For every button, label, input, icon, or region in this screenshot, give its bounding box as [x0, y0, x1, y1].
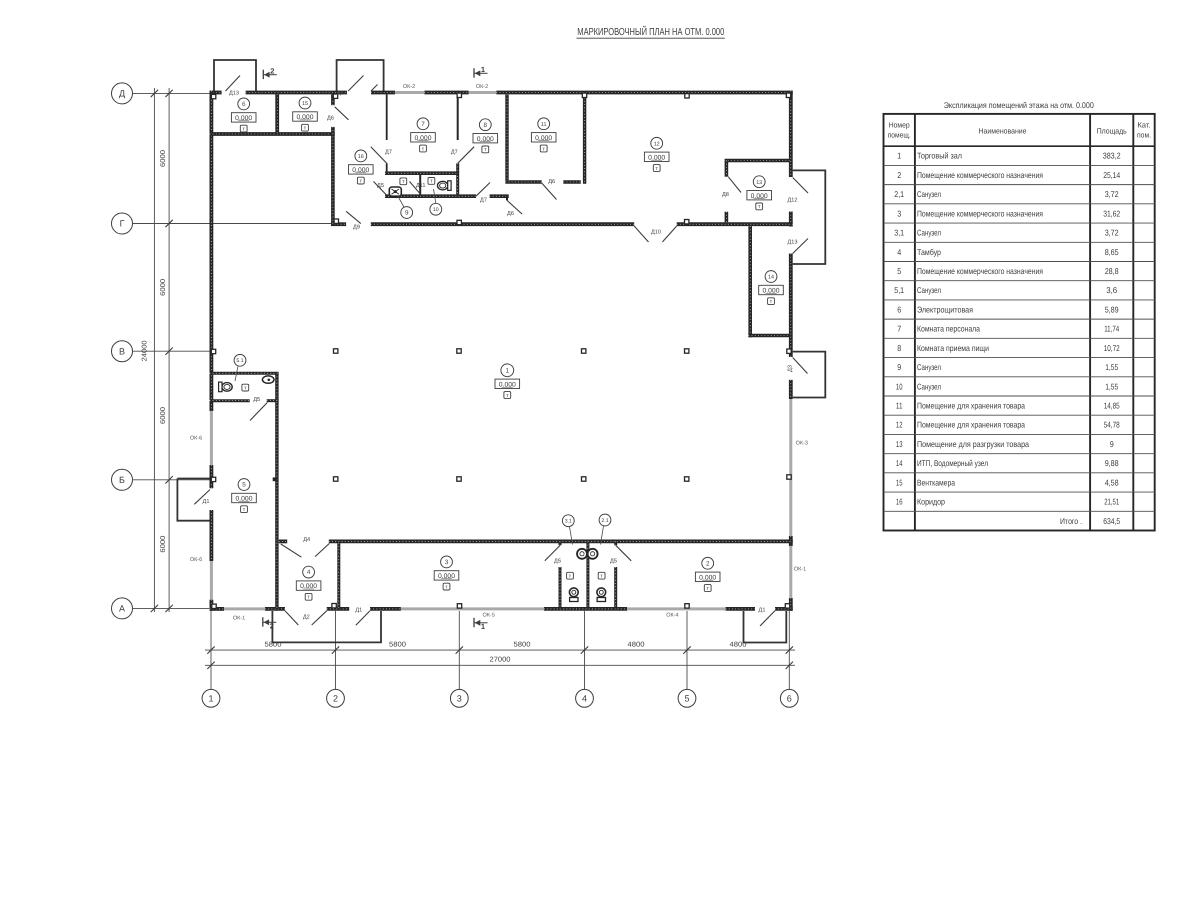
- svg-text:А: А: [119, 604, 125, 614]
- svg-text:2.1: 2.1: [601, 518, 608, 524]
- svg-text:2: 2: [333, 694, 338, 704]
- svg-text:634,5: 634,5: [1103, 516, 1120, 526]
- svg-text:3: 3: [897, 208, 901, 218]
- svg-text:ОК-5: ОК-5: [483, 612, 495, 618]
- svg-text:Санузел: Санузел: [917, 228, 941, 238]
- svg-text:7: 7: [421, 121, 425, 128]
- svg-text:12: 12: [896, 420, 903, 430]
- svg-text:8,65: 8,65: [1105, 247, 1119, 257]
- svg-text:Комната персонала: Комната персонала: [917, 324, 980, 334]
- svg-text:28,8: 28,8: [1105, 266, 1119, 276]
- svg-text:10,72: 10,72: [1104, 343, 1120, 353]
- svg-text:9: 9: [1110, 439, 1114, 449]
- svg-text:1: 1: [481, 65, 485, 74]
- svg-text:Венткамера: Венткамера: [917, 477, 955, 487]
- svg-text:ОК-1: ОК-1: [233, 616, 245, 622]
- svg-text:Д4: Д4: [303, 537, 310, 543]
- svg-text:2: 2: [270, 621, 274, 630]
- svg-text:5: 5: [897, 266, 901, 276]
- svg-text:4800: 4800: [628, 641, 645, 648]
- svg-text:пом.: пом.: [1137, 131, 1151, 140]
- svg-text:Д3: Д3: [788, 365, 794, 372]
- svg-text:Д5: Д5: [610, 558, 617, 564]
- svg-text:383,2: 383,2: [1103, 151, 1121, 161]
- svg-text:11: 11: [896, 401, 903, 411]
- svg-text:8: 8: [897, 343, 901, 353]
- svg-text:ОК-3: ОК-3: [796, 441, 808, 447]
- svg-text:6000: 6000: [160, 535, 167, 552]
- svg-text:6000: 6000: [160, 407, 167, 424]
- svg-text:Д1: Д1: [759, 608, 766, 614]
- svg-text:6: 6: [242, 101, 246, 108]
- svg-text:16: 16: [358, 154, 364, 160]
- svg-text:В: В: [119, 346, 125, 356]
- svg-text:9,88: 9,88: [1105, 458, 1119, 468]
- svg-text:2: 2: [706, 560, 710, 567]
- svg-text:Тамбур: Тамбур: [917, 247, 941, 257]
- svg-text:5.1: 5.1: [236, 358, 243, 364]
- svg-text:8: 8: [484, 122, 488, 129]
- svg-text:Д12: Д12: [787, 198, 797, 204]
- svg-text:1: 1: [481, 622, 485, 631]
- svg-text:МАРКИРОВОЧНЫЙ ПЛАН НА ОТМ. 0.0: МАРКИРОВОЧНЫЙ ПЛАН НА ОТМ. 0.000: [577, 25, 724, 38]
- svg-text:ОК-2: ОК-2: [476, 84, 488, 90]
- svg-text:13: 13: [756, 180, 762, 186]
- svg-text:13: 13: [896, 439, 903, 449]
- svg-text:Д2: Д2: [303, 614, 310, 620]
- svg-text:Д7: Д7: [451, 150, 458, 156]
- svg-text:Д8: Д8: [722, 192, 729, 198]
- svg-text:2: 2: [270, 67, 274, 76]
- svg-text:Комната приема пищи: Комната приема пищи: [917, 343, 989, 353]
- svg-text:5: 5: [242, 482, 246, 489]
- svg-text:Д7: Д7: [480, 198, 487, 204]
- svg-text:Наименование: Наименование: [979, 127, 1027, 136]
- svg-text:6000: 6000: [160, 279, 167, 296]
- svg-text:11,74: 11,74: [1104, 324, 1119, 334]
- svg-text:4: 4: [307, 569, 311, 576]
- svg-text:Д5: Д5: [554, 558, 561, 564]
- svg-text:10: 10: [433, 207, 439, 213]
- svg-text:Помещение коммерческого назнач: Помещение коммерческого назначения: [917, 266, 1043, 276]
- svg-text:Д5: Д5: [377, 183, 384, 189]
- svg-text:Д1: Д1: [203, 499, 210, 505]
- svg-text:Д1: Д1: [355, 608, 362, 614]
- svg-text:Итого .: Итого .: [1060, 516, 1082, 526]
- svg-text:1: 1: [506, 367, 510, 374]
- svg-text:5800: 5800: [514, 641, 531, 648]
- svg-text:Д11: Д11: [416, 183, 426, 189]
- svg-text:Экспликация помещений этажа на: Экспликация помещений этажа на отм. 0.00…: [944, 101, 1094, 110]
- svg-text:14: 14: [896, 458, 903, 468]
- svg-text:16: 16: [896, 497, 903, 507]
- svg-text:Д9: Д9: [353, 225, 360, 231]
- svg-text:Площадь: Площадь: [1097, 127, 1127, 136]
- svg-text:3: 3: [445, 559, 449, 566]
- svg-text:Помещение коммерческого назнач: Помещение коммерческого назначения: [917, 170, 1043, 180]
- svg-text:Электрощитовая: Электрощитовая: [917, 304, 973, 314]
- svg-text:5800: 5800: [389, 641, 406, 648]
- svg-text:9: 9: [405, 209, 409, 216]
- svg-text:1: 1: [208, 694, 213, 704]
- svg-text:Помещение для хранения товара: Помещение для хранения товара: [917, 401, 1025, 411]
- svg-text:10: 10: [896, 381, 903, 391]
- svg-text:3.1: 3.1: [565, 519, 572, 525]
- svg-text:3,1: 3,1: [894, 228, 904, 238]
- svg-text:24000: 24000: [141, 340, 148, 361]
- svg-text:ИТП, Водомерный узел: ИТП, Водомерный узел: [917, 458, 988, 468]
- svg-text:31,62: 31,62: [1103, 208, 1120, 218]
- svg-text:Номер: Номер: [889, 121, 910, 130]
- svg-text:5,89: 5,89: [1105, 304, 1119, 314]
- svg-text:Санузел: Санузел: [917, 381, 941, 391]
- svg-text:Д: Д: [119, 89, 125, 99]
- svg-text:Коридор: Коридор: [917, 497, 945, 507]
- svg-text:ОК-6: ОК-6: [190, 435, 202, 441]
- svg-text:Д5: Д5: [253, 397, 260, 403]
- svg-text:7: 7: [897, 324, 901, 334]
- svg-text:Д14: Д14: [337, 90, 347, 96]
- svg-text:Д7: Д7: [385, 150, 392, 156]
- svg-text:ОК-1: ОК-1: [794, 567, 806, 573]
- svg-text:1,55: 1,55: [1105, 381, 1118, 391]
- svg-text:3,6: 3,6: [1106, 285, 1117, 295]
- svg-text:Помещение для хранения товара: Помещение для хранения товара: [917, 420, 1025, 430]
- svg-text:Помещение коммерческого назнач: Помещение коммерческого назначения: [917, 208, 1043, 218]
- svg-text:12: 12: [654, 141, 660, 147]
- svg-text:Кат.: Кат.: [1138, 121, 1151, 130]
- svg-text:11: 11: [541, 122, 547, 128]
- svg-text:1,55: 1,55: [1105, 362, 1118, 372]
- svg-text:5,1: 5,1: [894, 285, 904, 295]
- svg-text:25,14: 25,14: [1103, 170, 1120, 180]
- svg-text:помещ.: помещ.: [888, 131, 911, 140]
- svg-text:4,58: 4,58: [1105, 477, 1119, 487]
- svg-text:27000: 27000: [490, 657, 511, 664]
- svg-text:Санузел: Санузел: [917, 362, 941, 372]
- svg-text:Санузел: Санузел: [917, 189, 941, 199]
- svg-text:Д13: Д13: [787, 240, 797, 246]
- svg-text:2,1: 2,1: [894, 189, 904, 199]
- svg-text:Торговый зал: Торговый зал: [917, 151, 962, 161]
- svg-text:1: 1: [897, 151, 901, 161]
- svg-text:5: 5: [684, 694, 689, 704]
- svg-text:21,51: 21,51: [1104, 497, 1119, 507]
- svg-text:3: 3: [457, 694, 462, 704]
- svg-text:ОК-2: ОК-2: [403, 84, 415, 90]
- svg-text:Д6: Д6: [507, 211, 514, 217]
- svg-text:Помещение для разгрузки товара: Помещение для разгрузки товара: [917, 439, 1029, 449]
- svg-text:14,85: 14,85: [1104, 401, 1120, 411]
- svg-text:15: 15: [896, 477, 903, 487]
- svg-text:Б: Б: [119, 475, 125, 485]
- svg-text:4: 4: [582, 694, 587, 704]
- svg-text:54,78: 54,78: [1104, 420, 1120, 430]
- svg-text:9: 9: [897, 362, 901, 372]
- svg-text:6: 6: [787, 694, 792, 704]
- svg-text:14: 14: [768, 275, 774, 281]
- svg-text:3,72: 3,72: [1105, 189, 1119, 199]
- svg-text:6: 6: [897, 304, 901, 314]
- svg-text:2: 2: [897, 170, 901, 180]
- svg-text:15: 15: [302, 101, 308, 107]
- svg-text:Д6: Д6: [327, 115, 334, 121]
- svg-text:Санузел: Санузел: [917, 285, 941, 295]
- svg-text:ОК-6: ОК-6: [190, 557, 202, 563]
- svg-text:3,72: 3,72: [1105, 228, 1119, 238]
- svg-text:Д13: Д13: [229, 91, 239, 97]
- svg-text:6000: 6000: [160, 150, 167, 167]
- svg-text:ОК-4: ОК-4: [666, 612, 678, 618]
- svg-text:Д10: Д10: [651, 230, 661, 236]
- svg-text:Д6: Д6: [548, 179, 555, 185]
- svg-text:4: 4: [897, 247, 901, 257]
- svg-text:Г: Г: [120, 219, 125, 229]
